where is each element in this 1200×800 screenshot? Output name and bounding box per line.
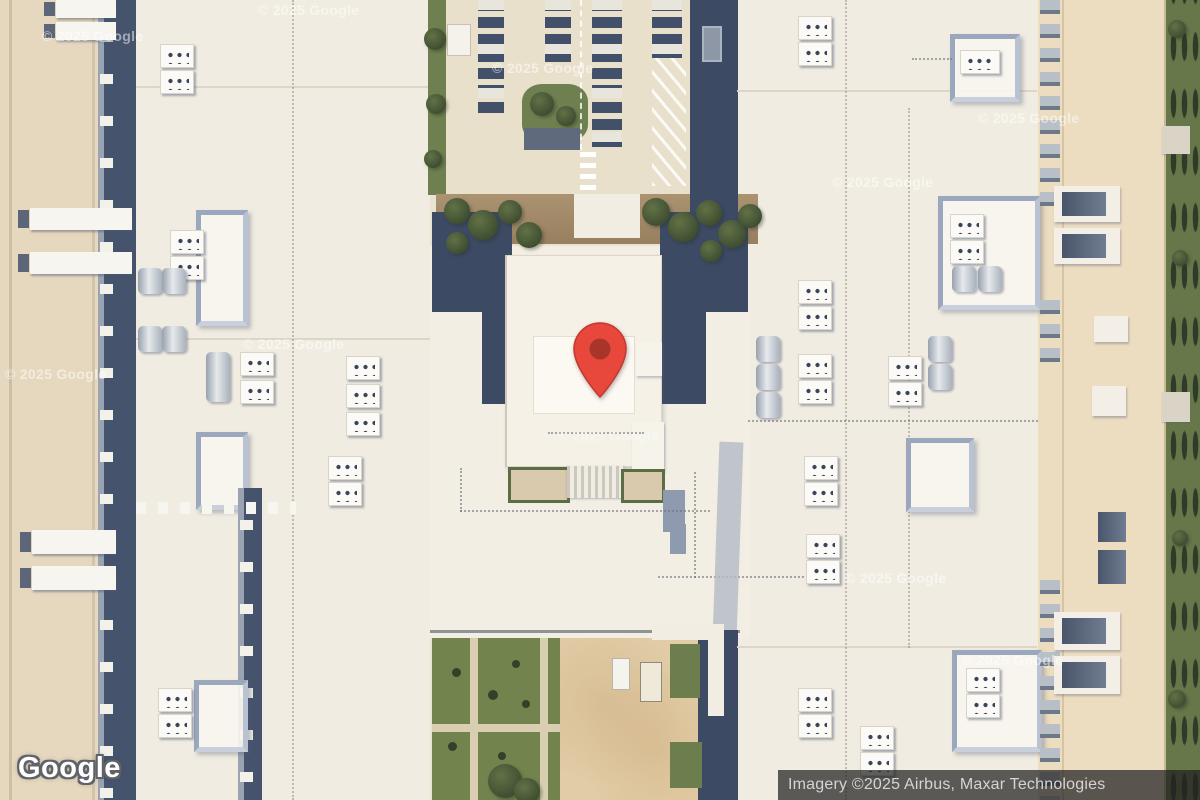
storage-tank [756,364,780,390]
hvac-unit [798,354,832,378]
parked-car-row [478,0,504,116]
equipment-row [1040,0,1060,215]
equipment-row [1040,300,1060,372]
tree [1172,250,1188,266]
tree [642,198,670,226]
hvac-unit [798,16,832,40]
tree [1168,690,1186,708]
hvac-unit [950,214,984,238]
hvac-unit [804,482,838,506]
hvac-unit [966,668,1000,692]
shrub [488,690,498,700]
shrub [452,668,461,677]
tree [514,778,540,800]
tree [530,92,554,116]
semi-truck [30,252,132,274]
shrub [448,742,457,751]
roof-expansion-joint [292,0,294,800]
hvac-unit [798,380,832,404]
hvac-unit [798,688,832,712]
attribution-bar: Imagery ©2025 Airbus, Maxar Technologies [778,770,1200,800]
lawn-path [470,638,478,800]
red-location-pin[interactable] [573,322,627,398]
roof-joint-dotted [548,432,644,434]
generator-unit [1098,512,1126,542]
roof-joint-dotted [460,468,462,512]
hvac-unit [950,240,984,264]
storage-tank [162,326,186,352]
skylight [702,26,722,62]
parked-van [612,658,630,690]
generator-unit [1062,192,1106,216]
lawn-path [540,638,548,800]
roof-joint-dotted [460,510,710,512]
tree [468,210,498,240]
rooftop-structure [636,342,662,376]
hvac-unit [346,356,380,380]
grass-patch [670,742,702,788]
tree [444,198,470,224]
parked-car-row [524,128,580,150]
hvac-unit [798,42,832,66]
hvac-unit [328,482,362,506]
tree [426,94,446,114]
generator-unit [1062,234,1106,258]
loading-dock-row-inner [238,488,262,800]
roof-seam [737,646,1037,648]
generator-unit [1062,618,1106,644]
satellite-map-canvas[interactable]: © 2025 Google © 2025 Google © 2025 Googl… [0,0,1200,800]
roof-joint-dotted [694,472,696,578]
lane-marking [580,0,582,150]
parked-car-row [652,0,682,58]
shrub [498,752,506,760]
roof-joint-dotted [748,420,1038,422]
truck-court-pavement-left [0,0,100,800]
hvac-unit [806,534,840,558]
tree [1168,20,1186,38]
equipment-pad [1094,316,1128,342]
roof-expansion-joint [845,0,847,800]
storage-tank [756,336,780,362]
parked-car-row [545,0,571,68]
hvac-unit [160,44,194,68]
hvac-unit [160,70,194,94]
roof-joint-dotted [912,58,952,60]
storage-tank [206,352,230,402]
semi-truck [32,566,116,590]
semi-truck [56,22,116,40]
hvac-unit [960,50,1000,74]
hedge-planter [508,467,570,503]
attribution-text: Imagery ©2025 Airbus, Maxar Technologies [788,776,1105,794]
dock-canopy-row [136,502,296,514]
concrete-pad [1162,392,1190,422]
storage-tank [952,266,976,292]
hvac-unit [888,356,922,380]
shrub [522,700,530,708]
tree [738,204,762,228]
hvac-unit [798,306,832,330]
tree [498,200,522,224]
shaded-courtyard [660,312,706,404]
shrub [512,660,520,668]
parked-car-row [592,0,622,150]
warehouse-roof-left [136,0,430,800]
entrance-walkway [574,194,640,238]
storage-tank [756,392,780,418]
equipment-trailer [640,662,662,702]
tree [1172,530,1188,546]
hvac-unit [170,230,204,254]
grass-patch [670,644,700,698]
concrete-pad [1162,126,1190,154]
walled-roof-unit [194,680,248,752]
concrete-pad [447,24,471,56]
tree [668,212,698,242]
rooftop-structure [632,422,664,472]
google-logo[interactable]: Google [18,752,121,785]
hvac-unit [966,694,1000,718]
ribbed-canopy [567,466,625,498]
tree [424,150,442,168]
tree [556,106,576,126]
hvac-unit [328,456,362,480]
semi-truck [32,530,116,554]
stair-tower-shadow [670,524,686,554]
semi-truck [56,0,116,18]
storage-tank [928,336,952,362]
hvac-unit [346,384,380,408]
hvac-unit [806,560,840,584]
hvac-unit [240,352,274,376]
hvac-unit [798,714,832,738]
storage-tank [978,266,1002,292]
hvac-unit [158,688,192,712]
semi-truck [30,208,132,230]
generator-unit [1098,550,1126,584]
hvac-unit [798,280,832,304]
loading-dock-row-left [98,0,136,800]
hedge-planter [621,469,665,503]
tree [696,200,722,226]
hvac-unit [240,380,274,404]
map-pin-icon [573,322,627,398]
tree [700,240,722,262]
tree [424,28,446,50]
crosswalk [580,152,596,194]
storage-tank [928,364,952,390]
storage-tank [162,268,186,294]
hvac-unit [860,726,894,750]
hvac-unit [888,382,922,406]
curved-walkway [708,624,724,716]
hvac-unit [158,714,192,738]
hvac-unit [346,412,380,436]
lawn-path [432,724,560,732]
storage-tank [138,268,162,294]
generator-unit [1062,662,1106,688]
walled-roof-unit [906,438,974,512]
storage-tank [138,326,162,352]
tree [516,222,542,248]
equipment-pad [1092,386,1126,416]
roof-joint-dotted [658,576,828,578]
tree [446,232,468,254]
hatched-no-parking-zone [652,58,686,186]
hvac-unit [804,456,838,480]
